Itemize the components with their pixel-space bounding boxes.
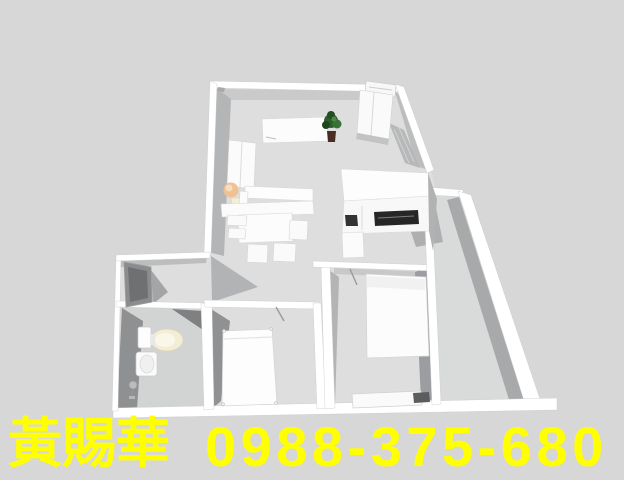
watermark-phone: 0988-375-680: [205, 415, 608, 478]
kitchen-cart: [342, 232, 364, 258]
chair: [247, 244, 268, 263]
wall-shelf: [262, 117, 328, 143]
chair: [289, 220, 308, 240]
cabinet-top-right: [356, 90, 393, 145]
watermark: 黃賜華 0988-375-680: [8, 414, 608, 478]
kitchen-sink-dark: [345, 215, 358, 226]
entry-door: [124, 262, 152, 307]
floorplan-screenshot: 黃賜華 0988-375-680: [0, 0, 624, 480]
chair: [227, 215, 247, 226]
bed-1: [221, 327, 277, 406]
floorplan-render: 黃賜華 0988-375-680: [0, 0, 624, 480]
watermark-name: 黃賜華: [8, 414, 170, 474]
bench: [352, 391, 430, 408]
chair: [273, 243, 296, 262]
bathroom-sink: [136, 352, 157, 376]
chair: [228, 228, 246, 239]
wardrobe: [227, 140, 256, 189]
bed-2: [366, 274, 429, 358]
